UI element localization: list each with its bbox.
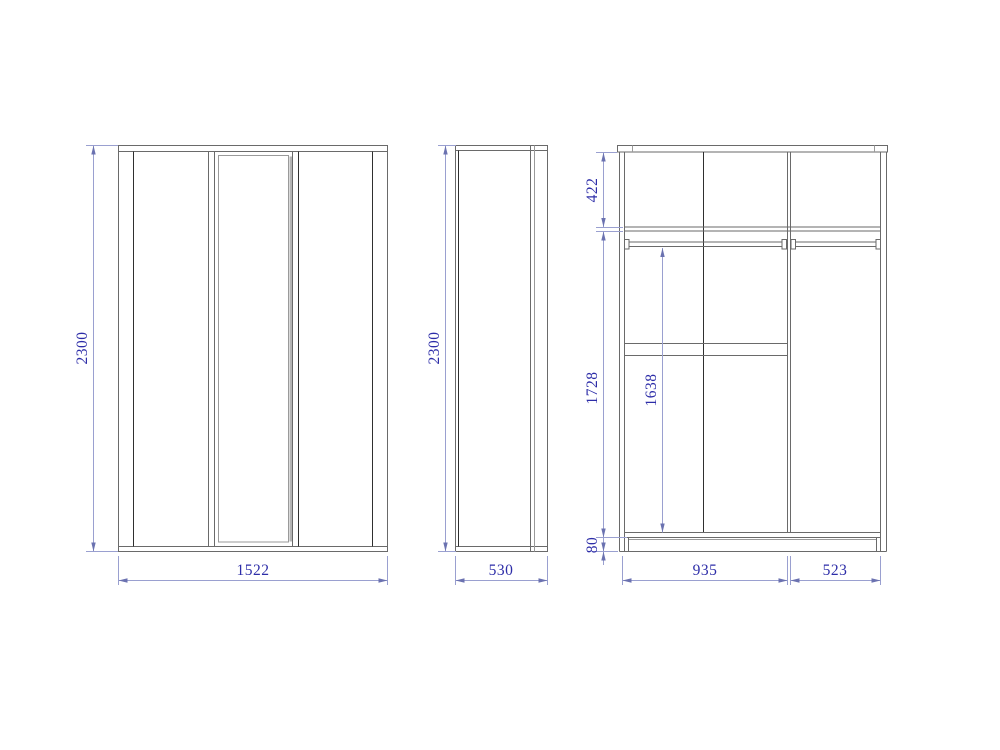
arrowhead-left <box>791 578 800 582</box>
arrowhead-down <box>601 543 605 552</box>
arrowhead-left <box>623 578 632 582</box>
arrowhead-down <box>601 529 605 538</box>
arrowhead-up <box>91 146 95 155</box>
left-hanging-rail <box>629 242 782 247</box>
dim-label-lower-section: 1728 <box>584 372 601 405</box>
side-cabinet-outline <box>456 146 548 552</box>
arrowhead-right <box>872 578 881 582</box>
right-rail-right-bracket <box>876 240 881 250</box>
dim-label-plinth: 80 <box>584 537 601 554</box>
dim-label-top-section: 422 <box>584 178 601 203</box>
wardrobe-drawing: 2300 1522 2300 530 <box>0 0 1000 750</box>
internal-top-panel <box>618 146 888 153</box>
dim-lower-section: 1728 <box>584 232 623 552</box>
dim-hanging-clearance: 1638 <box>643 248 665 533</box>
dim-right-compartment: 523 <box>791 556 881 585</box>
technical-drawing-canvas: 2300 1522 2300 530 <box>0 0 1000 750</box>
dim-label-side-depth: 530 <box>489 562 514 579</box>
dim-label-side-height: 2300 <box>426 332 443 365</box>
front-view <box>119 146 388 552</box>
right-rail-left-bracket <box>791 240 796 250</box>
dim-left-compartment: 935 <box>623 556 788 585</box>
dim-side-depth: 530 <box>456 556 548 585</box>
dim-top-section: 422 <box>584 153 623 228</box>
arrowhead-up <box>443 146 447 155</box>
arrowhead-right <box>379 578 388 582</box>
right-hanging-rail <box>796 242 877 247</box>
left-rail-right-bracket <box>782 240 787 250</box>
dim-front-height: 2300 <box>74 146 118 552</box>
arrowhead-up <box>601 153 605 162</box>
dim-side-height: 2300 <box>426 146 456 552</box>
dim-label-front-width: 1522 <box>237 562 270 579</box>
front-mirror-door-frame <box>215 152 293 547</box>
dim-label-front-height: 2300 <box>74 332 91 365</box>
arrowhead-up <box>660 248 664 257</box>
dim-label-left-compartment: 935 <box>693 562 718 579</box>
side-view <box>456 146 548 552</box>
left-rail-left-bracket <box>625 240 630 250</box>
dim-label-right-compartment: 523 <box>823 562 848 579</box>
dim-plinth: 80 <box>584 524 627 565</box>
arrowhead-down <box>601 218 605 227</box>
arrowhead-up <box>601 232 605 241</box>
arrowhead-down <box>660 524 664 533</box>
arrowhead-left <box>119 578 128 582</box>
arrowhead-right <box>539 578 548 582</box>
arrowhead-up <box>601 552 605 561</box>
dim-front-width: 1522 <box>119 556 388 585</box>
arrowhead-left <box>456 578 465 582</box>
dim-label-hanging-clearance: 1638 <box>643 374 660 407</box>
arrowhead-down <box>443 543 447 552</box>
arrowhead-down <box>91 543 95 552</box>
dimensions: 2300 1522 2300 530 <box>74 146 881 586</box>
front-mirror-panel <box>219 156 289 543</box>
arrowhead-right <box>779 578 788 582</box>
front-cabinet-outline <box>119 146 388 552</box>
internal-view <box>618 146 888 552</box>
